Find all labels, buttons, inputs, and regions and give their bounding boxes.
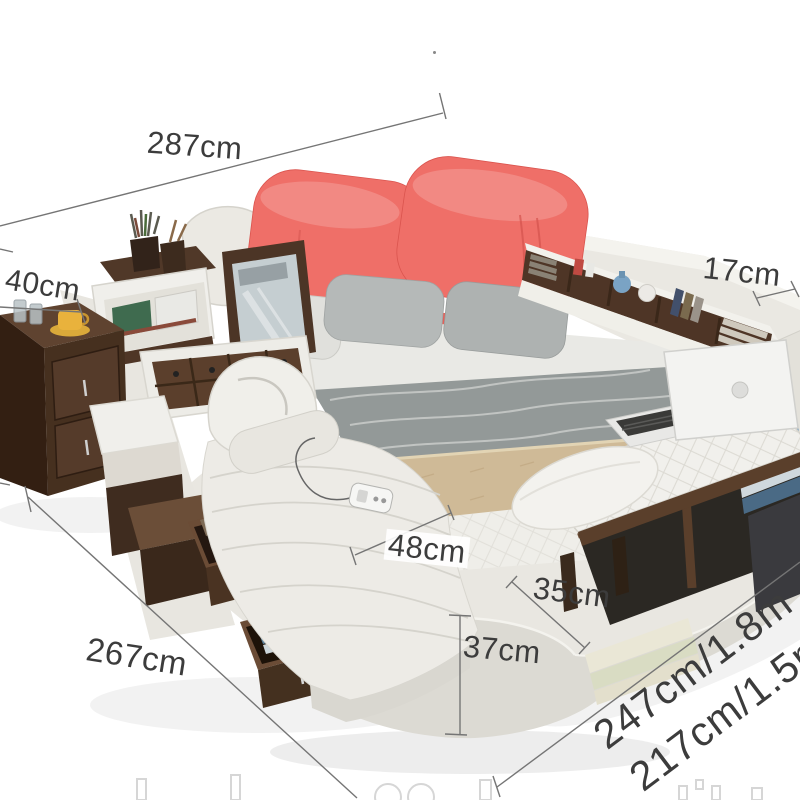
dot-marker [433, 51, 436, 54]
pillow-gray-1 [322, 273, 445, 349]
laptop-screen [664, 340, 798, 440]
bed-dimension-diagram: 287cm 40cm 17cm 48cm 35cm 37cm 267cm 247… [0, 0, 800, 800]
pen-holder [130, 236, 160, 272]
laptop-logo-icon [732, 382, 748, 398]
glass-item [30, 304, 42, 324]
storage-divider [686, 498, 692, 588]
shelf-vase-white [639, 285, 656, 302]
dimension-label-chaise-width: 48cm [384, 529, 471, 569]
dimension-label-platform-height: 37cm [462, 631, 542, 669]
dimension-label-shelf-depth: 17cm [702, 252, 783, 291]
dimension-label-corner-depth: 35cm [531, 572, 612, 612]
glass-item [14, 300, 26, 322]
dimension-label-bed-width: 287cm [146, 127, 243, 165]
coffee-cup [58, 310, 82, 330]
